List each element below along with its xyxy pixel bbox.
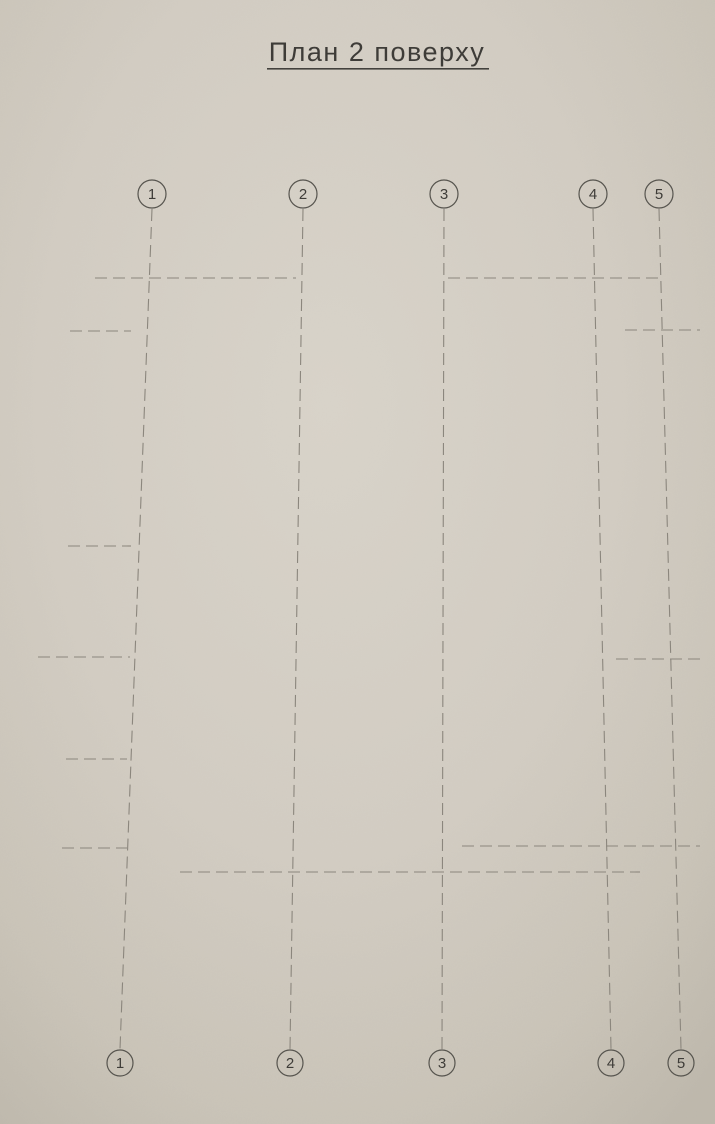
svg-text:5: 5 [655,186,663,203]
svg-text:4: 4 [607,1055,615,1072]
svg-text:5: 5 [677,1055,685,1072]
svg-text:3: 3 [438,1055,446,1072]
svg-text:План 2 поверху: План 2 поверху [269,37,486,67]
svg-text:4: 4 [589,186,597,203]
svg-text:2: 2 [299,186,307,203]
svg-text:1: 1 [148,186,156,203]
svg-text:1: 1 [116,1055,124,1072]
svg-text:2: 2 [286,1055,294,1072]
svg-text:3: 3 [440,186,448,203]
